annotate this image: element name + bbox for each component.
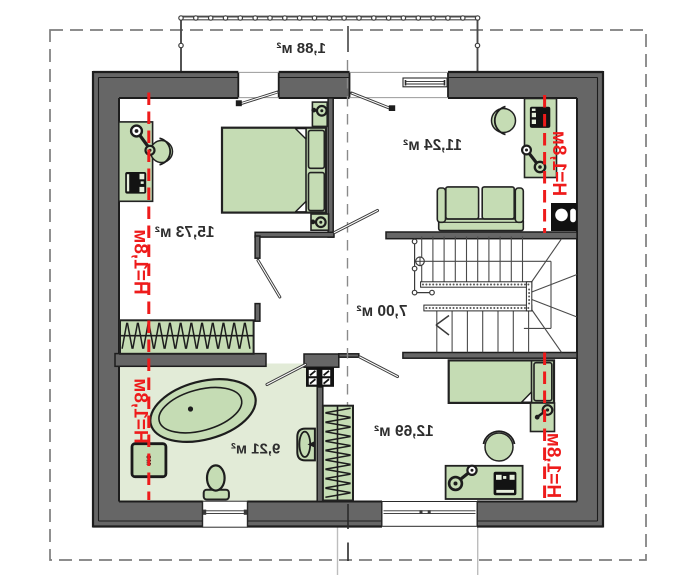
svg-text:9,21 м²: 9,21 м² — [231, 440, 280, 457]
svg-text:12,69 м²: 12,69 м² — [374, 423, 434, 440]
svg-text:15,73 м²: 15,73 м² — [155, 224, 215, 241]
svg-text:Н=1,8м: Н=1,8м — [130, 229, 151, 294]
svg-text:Н=1,8м: Н=1,8м — [130, 378, 151, 443]
svg-text:7,00 м²: 7,00 м² — [356, 303, 407, 320]
svg-text:Н=1,8м: Н=1,8м — [543, 433, 564, 498]
svg-text:11,24 м²: 11,24 м² — [403, 137, 462, 154]
svg-text:1,88 м²: 1,88 м² — [277, 40, 326, 57]
svg-text:Н=1,8м: Н=1,8м — [548, 131, 569, 196]
